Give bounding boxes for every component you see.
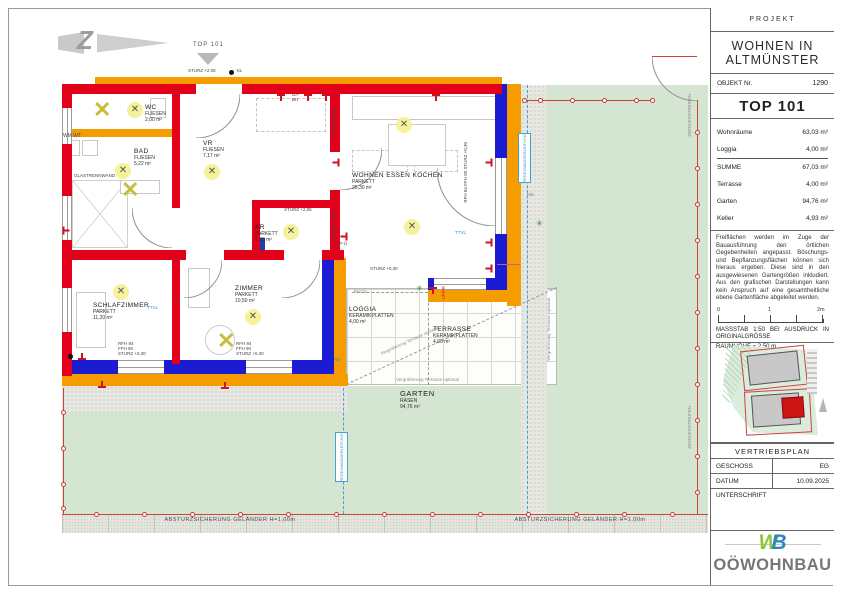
entry-label: TOP 101 bbox=[193, 42, 224, 48]
fence-post bbox=[650, 98, 655, 103]
absturz-label: ABSTURZSICHERUNG GELÄNDER H=1,00m bbox=[100, 517, 360, 523]
plan-sheet: Z ✳✳✕✕✕✕✕✕✕✕✕✕✕ TOP 101 STURZ +2,05 KL W… bbox=[0, 0, 842, 595]
rr-label: RR bbox=[334, 357, 341, 362]
geschoss-row: GESCHOSS EG bbox=[711, 459, 834, 474]
fence-post bbox=[430, 512, 435, 517]
furniture-outline bbox=[388, 124, 446, 166]
project-name-line2: ALTMÜNSTER bbox=[726, 53, 820, 67]
area-value: 4,00 m² bbox=[806, 181, 828, 188]
socket-icon bbox=[341, 233, 348, 241]
fence-post bbox=[94, 512, 99, 517]
socket-icon bbox=[486, 239, 493, 247]
fence-line bbox=[63, 388, 64, 514]
room-label-wohnen: WOHNEN ESSEN KOCHEN PARKETT 25,30 m² bbox=[352, 172, 443, 191]
socket-icon bbox=[78, 353, 86, 360]
door-swing-arc bbox=[184, 260, 222, 298]
sturz-label: STURZ +2,05 bbox=[284, 207, 312, 212]
datum-row: DATUM 10.09.2025 bbox=[711, 474, 834, 489]
window bbox=[495, 158, 507, 234]
window bbox=[118, 360, 164, 374]
area-label: Terrasse bbox=[717, 181, 742, 188]
room-name: WOHNEN ESSEN KOCHEN bbox=[352, 172, 443, 179]
sturz-label: STURZ +2,05 bbox=[332, 108, 337, 136]
sturz-label: STURZ +2,05 bbox=[188, 68, 216, 73]
door-opening bbox=[196, 84, 242, 94]
room-name: BAD bbox=[134, 148, 155, 155]
area-row: Garten94,76 m² bbox=[717, 193, 828, 210]
drain-marker-icon: ✳ bbox=[416, 285, 423, 293]
area-value: 4,00 m² bbox=[806, 146, 828, 153]
fence-post bbox=[695, 454, 700, 459]
area-label: Wohnräume bbox=[717, 129, 752, 136]
ceiling-light-icon: ✕ bbox=[404, 219, 420, 235]
ceiling-light-icon: ✕ bbox=[396, 117, 412, 133]
socket-icon bbox=[333, 159, 340, 167]
company-logo: WB OÖWOHNBAU bbox=[711, 531, 834, 575]
door-swing-arc bbox=[196, 94, 240, 138]
room-name: LOGGIA bbox=[349, 306, 394, 313]
wall-segment bbox=[172, 260, 180, 364]
geschoss-label: GESCHOSS bbox=[711, 459, 773, 473]
pipe-label-box: REGENWASSERLEITUNG bbox=[335, 432, 348, 482]
sturz-label: STURZ +2,05 bbox=[332, 212, 337, 240]
zierkies-label: ZIERKIESSTREIFEN bbox=[687, 94, 692, 137]
rigol-label: RIGOL bbox=[354, 289, 368, 294]
pipe-label-box: REGENWASSERLEITUNG bbox=[518, 133, 531, 183]
site-parking-strip bbox=[807, 349, 817, 395]
floor-plan: ✳✳✕✕✕✕✕✕✕✕✕✕✕ TOP 101 STURZ +2,05 KL WC … bbox=[0, 0, 710, 595]
room-label-garten: GARTEN RASEN 94,76 m² bbox=[400, 389, 435, 410]
area-value: 67,03 m² bbox=[802, 164, 828, 171]
ceiling-light-icon: ✕ bbox=[204, 164, 220, 180]
fence-post bbox=[695, 346, 700, 351]
room-label-ar: AR PARKETT 1,78 m² bbox=[255, 224, 278, 243]
area-value: 4,93 m² bbox=[806, 215, 828, 222]
terrace-divider bbox=[428, 288, 429, 385]
door-swing-arc bbox=[132, 208, 172, 248]
ceiling-light-icon: ✕ bbox=[127, 102, 143, 118]
gravel-strip bbox=[62, 386, 348, 412]
objekt-row: OBJEKT Nr. 1290 bbox=[711, 74, 834, 94]
ceiling-light-icon: ✕ bbox=[283, 224, 299, 240]
area-table: Wohnräume63,03 m² Loggia4,00 m² SUMME67,… bbox=[711, 119, 834, 231]
fence-post bbox=[522, 98, 527, 103]
project-name: WOHNEN IN ALTMÜNSTER bbox=[711, 32, 834, 74]
fence-post bbox=[61, 506, 66, 511]
area-value: 63,03 m² bbox=[802, 129, 828, 136]
projekt-header: PROJEKT bbox=[711, 8, 834, 32]
datum-value: 10.09.2025 bbox=[773, 474, 834, 488]
socket-icon bbox=[429, 287, 437, 294]
fence-post bbox=[61, 410, 66, 415]
wall-exterior-segment bbox=[322, 258, 334, 374]
fence-post bbox=[695, 202, 700, 207]
scale-bar: 0 1 2m bbox=[718, 308, 827, 324]
window-height-label: RFH 84 FFH 90 STURZ +0,30 bbox=[236, 341, 264, 356]
dimension-arrow bbox=[497, 264, 520, 265]
room-label-bad: BAD FLIESEN 5,22 m² bbox=[134, 148, 155, 167]
window bbox=[62, 288, 72, 332]
scale-tick-2: 2m bbox=[817, 307, 825, 315]
room-area: 4,00 m² bbox=[433, 339, 478, 345]
furniture-outline bbox=[352, 96, 500, 120]
logo-letter-b: B bbox=[771, 531, 786, 554]
room-area: 1,78 m² bbox=[255, 237, 278, 243]
fence-post bbox=[602, 98, 607, 103]
objekt-number: 1290 bbox=[812, 80, 828, 87]
window bbox=[246, 360, 292, 374]
fine-print-block: Freiflächen werden im Zuge der Bauausfüh… bbox=[711, 231, 834, 343]
room-area: 10,50 m² bbox=[235, 298, 263, 304]
area-label: SUMME bbox=[717, 164, 741, 171]
ceiling-light-icon: ✕ bbox=[245, 309, 261, 325]
pipe-label: REGENWASSERLEITUNG bbox=[522, 134, 527, 183]
socket-icon bbox=[486, 265, 493, 273]
geschoss-value: EG bbox=[773, 459, 834, 473]
mb-label: MB bbox=[527, 192, 534, 197]
room-name: ZIMMER bbox=[235, 285, 263, 292]
room-name: VR bbox=[203, 140, 224, 147]
socket-icon bbox=[63, 227, 70, 235]
disclaimer-text: Freiflächen werden im Zuge der Bauausfüh… bbox=[716, 235, 829, 303]
site-plan-thumbnail bbox=[711, 343, 834, 443]
upfr-label: UP/FR bbox=[441, 286, 446, 300]
site-parcel-line bbox=[744, 388, 812, 435]
project-name-line1: WOHNEN IN bbox=[732, 39, 814, 53]
room-name: SCHLAFZIMMER bbox=[93, 302, 149, 309]
vertriebsplan-label: VERTRIEBSPLAN bbox=[711, 443, 834, 459]
scale-bar-line bbox=[718, 319, 824, 323]
garden-lawn bbox=[545, 85, 708, 515]
da-bh-label: DA BH bbox=[292, 92, 298, 102]
terrasse-option-label: Vergrößerung Terrasse optional bbox=[396, 377, 459, 382]
doorbell-icon bbox=[229, 70, 234, 75]
ceiling-light-icon: ✕ bbox=[115, 163, 131, 179]
absturz-label: ABSTURZSICHERUNG GELÄNDER H=1,00m bbox=[450, 517, 710, 523]
fence-line bbox=[524, 100, 652, 101]
unit-title: TOP 101 bbox=[711, 94, 834, 119]
room-area: 11,20 m² bbox=[93, 315, 149, 321]
zierkies-label: ZIERKIESSTREIFEN bbox=[687, 406, 692, 449]
room-label-terrasse: TERRASSE KERAMIKPLATTEN 4,00 m² bbox=[433, 326, 478, 345]
room-area: 94,76 m² bbox=[400, 404, 435, 410]
church-spire-icon bbox=[819, 398, 827, 412]
fence-post bbox=[695, 238, 700, 243]
scale-tick-0: 0 bbox=[717, 307, 720, 315]
wall-insulation-segment bbox=[72, 129, 172, 137]
door-swing-arc bbox=[282, 260, 320, 298]
fence-post bbox=[61, 482, 66, 487]
room-name: WC bbox=[145, 104, 166, 111]
fence-post bbox=[538, 98, 543, 103]
fence-post bbox=[61, 446, 66, 451]
fence-post bbox=[570, 98, 575, 103]
datum-label: DATUM bbox=[711, 474, 773, 488]
room-area: 7,17 m² bbox=[203, 153, 224, 159]
fence-post bbox=[634, 98, 639, 103]
title-block: PROJEKT WOHNEN IN ALTMÜNSTER OBJEKT Nr. … bbox=[710, 8, 834, 585]
north-mark-letter: Z bbox=[77, 27, 93, 53]
room-label-loggia: LOGGIA KERAMIKPLATTEN 4,00 m² bbox=[349, 306, 394, 325]
area-row: Loggia4,00 m² bbox=[717, 141, 828, 158]
area-row: Wohnräume63,03 m² bbox=[717, 124, 828, 141]
wall-segment bbox=[62, 84, 502, 94]
area-row: Terrasse4,00 m² bbox=[717, 176, 828, 193]
logo-text: OÖWOHNBAU bbox=[713, 556, 831, 575]
sturz-label: STURZ +0,30 bbox=[370, 266, 398, 271]
socket-icon bbox=[432, 94, 440, 101]
kat-label: KAT-Ü bbox=[334, 241, 347, 246]
wall-insulation-segment bbox=[507, 84, 521, 306]
glastrennwand-label: GLASTRENNWAND bbox=[74, 173, 115, 178]
fence-post bbox=[695, 418, 700, 423]
socket-icon bbox=[221, 382, 229, 389]
room-name: TERRASSE bbox=[433, 326, 478, 333]
room-label-vr: VR FLIESEN 7,17 m² bbox=[203, 140, 224, 159]
room-label-schlafzimmer: SCHLAFZIMMER PARKETT 11,20 m² bbox=[93, 302, 149, 321]
wb-logo-icon: WB bbox=[743, 531, 803, 555]
fence-post bbox=[695, 382, 700, 387]
room-label-wc: WC FLIESEN 2,00 m² bbox=[145, 104, 166, 123]
fence-post bbox=[695, 274, 700, 279]
room-area: 4,00 m² bbox=[349, 319, 394, 325]
pipe-label: REGENWASSERLEITUNG bbox=[339, 433, 344, 482]
fence-line bbox=[652, 56, 697, 57]
furniture-dashed-outline bbox=[256, 98, 326, 132]
socket-icon bbox=[173, 297, 180, 305]
room-label-zimmer: ZIMMER PARKETT 10,50 m² bbox=[235, 285, 263, 304]
area-row: Keller4,93 m² bbox=[717, 210, 828, 227]
fence-post bbox=[382, 512, 387, 517]
door-opening bbox=[284, 250, 322, 260]
site-parcel-line bbox=[740, 345, 807, 391]
garden-lawn bbox=[62, 412, 348, 514]
ceiling-light-icon: ✕ bbox=[113, 284, 129, 300]
area-label: Loggia bbox=[717, 146, 737, 153]
room-area: 2,00 m² bbox=[145, 117, 166, 123]
room-area: 25,30 m² bbox=[352, 185, 443, 191]
junction-dot-icon bbox=[68, 354, 73, 359]
objekt-label: OBJEKT Nr. bbox=[717, 80, 752, 87]
room-name: GARTEN bbox=[400, 389, 435, 398]
drain-marker-icon: ✳ bbox=[536, 220, 543, 228]
fence-post bbox=[695, 490, 700, 495]
socket-icon bbox=[98, 381, 106, 388]
furniture-outline bbox=[82, 140, 98, 156]
room-name: AR bbox=[255, 224, 278, 231]
scale-tick-1: 1 bbox=[768, 307, 771, 315]
fence-post bbox=[695, 166, 700, 171]
window-height-label: RFH 84 FFH 90 STURZ +0,30 bbox=[118, 341, 146, 356]
wm-wt-label: WM WT bbox=[63, 133, 81, 139]
unterschrift-box: UNTERSCHRIFT bbox=[711, 489, 834, 531]
ttvl-label: TTVL bbox=[147, 305, 158, 310]
door-opening bbox=[186, 250, 224, 260]
massstab-note: MASSSTAB 1:50 BEI AUSDRUCK IN ORIGINALGR… bbox=[716, 327, 829, 341]
socket-icon bbox=[304, 94, 312, 101]
socket-icon bbox=[486, 159, 493, 167]
room-area: 5,22 m² bbox=[134, 161, 155, 167]
ttvl-label: TTVL bbox=[455, 230, 466, 235]
area-label: Keller bbox=[717, 215, 734, 222]
fence-post bbox=[695, 310, 700, 315]
socket-icon bbox=[322, 94, 330, 101]
pendant-light-icon: ✕ bbox=[217, 330, 235, 352]
door-opening bbox=[172, 208, 180, 250]
kl-label: KL bbox=[237, 68, 243, 73]
fence-post bbox=[695, 130, 700, 135]
area-label: Garten bbox=[717, 198, 737, 205]
entry-arrow-icon bbox=[197, 53, 219, 65]
area-row-summe: SUMME67,03 m² bbox=[717, 158, 828, 176]
terrasse-option-label: Vergrößerung Terrasse optional bbox=[546, 298, 551, 361]
area-value: 94,76 m² bbox=[802, 198, 828, 205]
fence-line bbox=[697, 100, 698, 514]
pendant-light-icon: ✕ bbox=[121, 179, 139, 201]
pendant-light-icon: ✕ bbox=[93, 99, 111, 121]
wall-insulation-segment bbox=[95, 77, 502, 84]
socket-icon bbox=[277, 94, 285, 101]
window-height-label: RFH 84 FFH 90 STURZ +0,30 bbox=[463, 142, 468, 203]
